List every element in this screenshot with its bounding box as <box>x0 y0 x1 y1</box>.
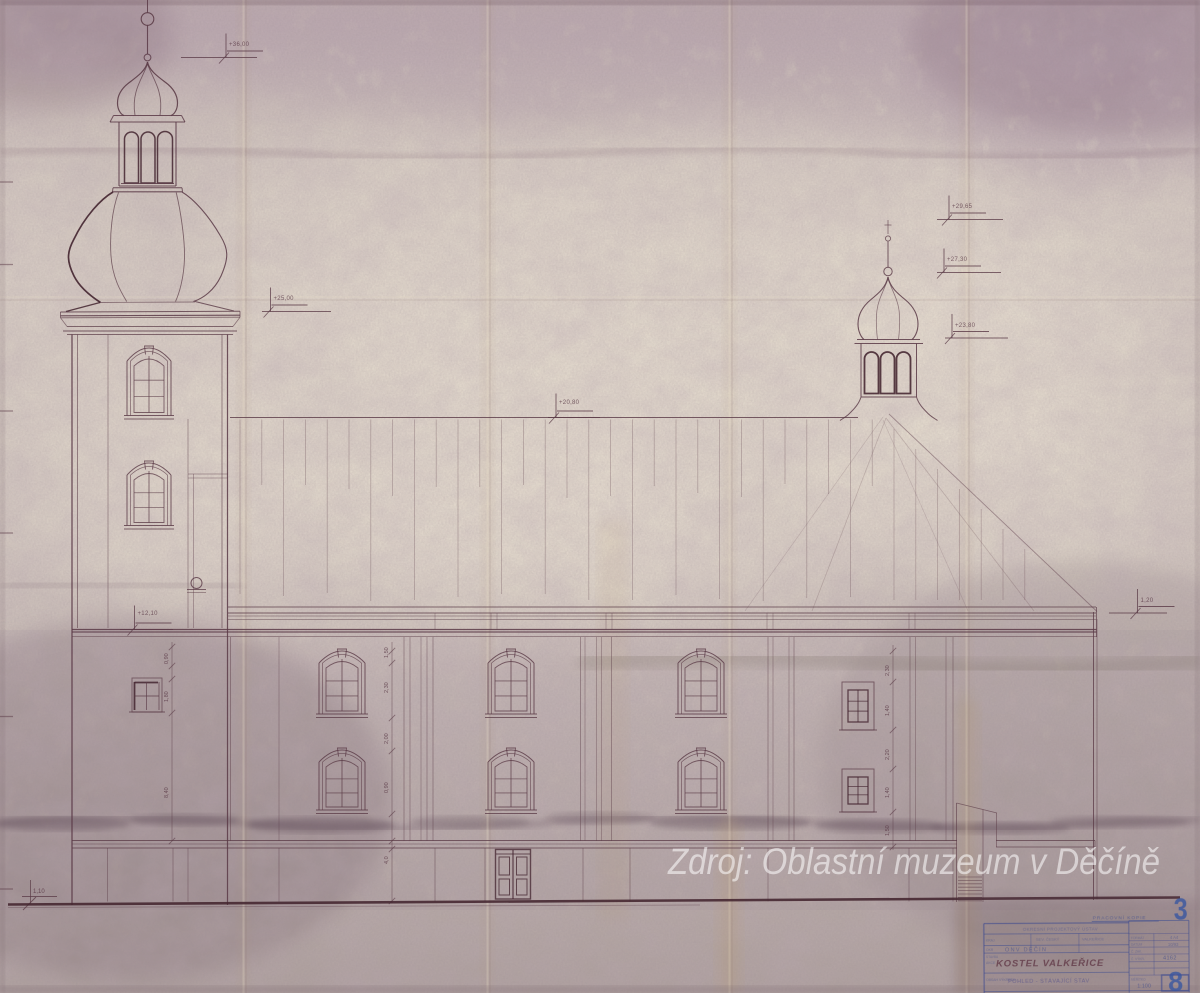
svg-text:1,40: 1,40 <box>885 787 891 798</box>
svg-text:OKR: OKR <box>986 948 994 952</box>
svg-text:8,40: 8,40 <box>164 787 170 798</box>
svg-text:4 A4: 4 A4 <box>1170 935 1179 940</box>
svg-text:2,00: 2,00 <box>384 733 390 744</box>
svg-text:Č. ZAK.: Č. ZAK. <box>1131 949 1142 954</box>
svg-text:+25,00: +25,00 <box>274 296 295 302</box>
svg-text:KRAJ: KRAJ <box>986 939 995 943</box>
svg-text:+36,00: +36,00 <box>229 42 250 48</box>
svg-text:DATUM: DATUM <box>1131 943 1142 947</box>
svg-text:1,20: 1,20 <box>1141 598 1154 604</box>
svg-text:+23,80: +23,80 <box>955 323 976 329</box>
svg-text:0,90: 0,90 <box>384 782 390 793</box>
svg-text:8: 8 <box>1168 966 1183 993</box>
svg-text:FORMÁT: FORMÁT <box>1131 936 1145 940</box>
svg-text:AKCE: AKCE <box>986 961 996 965</box>
svg-text:1:100: 1:100 <box>1137 984 1151 990</box>
svg-text:ONV DĚČÍN: ONV DĚČÍN <box>1005 945 1047 953</box>
svg-text:1,50: 1,50 <box>384 647 390 658</box>
svg-text:SEV. ČESKÝ: SEV. ČESKÝ <box>1036 937 1060 942</box>
svg-text:Č. VÝKR.: Č. VÝKR. <box>1131 956 1145 961</box>
svg-text:4162: 4162 <box>1163 955 1177 961</box>
svg-text:0,90: 0,90 <box>164 653 170 664</box>
svg-text:KOSTEL VALKEŘICE: KOSTEL VALKEŘICE <box>996 957 1104 970</box>
svg-text:10/93: 10/93 <box>1168 942 1179 947</box>
svg-text:POHLED - STÁVAJÍCÍ STAV: POHLED - STÁVAJÍCÍ STAV <box>1008 977 1090 984</box>
svg-text:+27,30: +27,30 <box>947 257 968 263</box>
svg-text:1,10: 1,10 <box>33 889 45 895</box>
svg-text:2,30: 2,30 <box>384 682 390 693</box>
svg-text:Zdroj: Oblastní muzeum v Děčín: Zdroj: Oblastní muzeum v Děčíně <box>667 841 1160 882</box>
svg-text:1,50: 1,50 <box>885 825 891 836</box>
svg-text:+12,10: +12,10 <box>138 611 159 617</box>
svg-text:3: 3 <box>1174 891 1188 926</box>
svg-text:+20,80: +20,80 <box>559 400 580 406</box>
svg-text:4,0: 4,0 <box>384 856 390 864</box>
svg-text:VALKEŘICE: VALKEŘICE <box>1082 936 1105 941</box>
svg-text:2,30: 2,30 <box>885 665 891 676</box>
svg-text:OKRESNÍ PROJEKTOVÝ ÚSTAV: OKRESNÍ PROJEKTOVÝ ÚSTAV <box>1023 926 1098 931</box>
svg-text:1,80: 1,80 <box>164 691 170 702</box>
svg-text:+29,65: +29,65 <box>952 204 973 210</box>
svg-text:1,40: 1,40 <box>885 705 891 716</box>
svg-text:2,20: 2,20 <box>885 749 891 760</box>
svg-text:MĚŘÍTKO: MĚŘÍTKO <box>1131 977 1146 982</box>
